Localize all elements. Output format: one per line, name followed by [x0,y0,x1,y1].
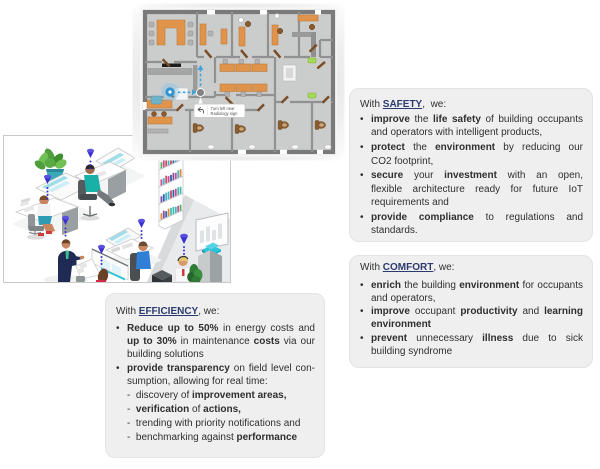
svg-text:Radiology sign: Radiology sign [211,111,239,116]
